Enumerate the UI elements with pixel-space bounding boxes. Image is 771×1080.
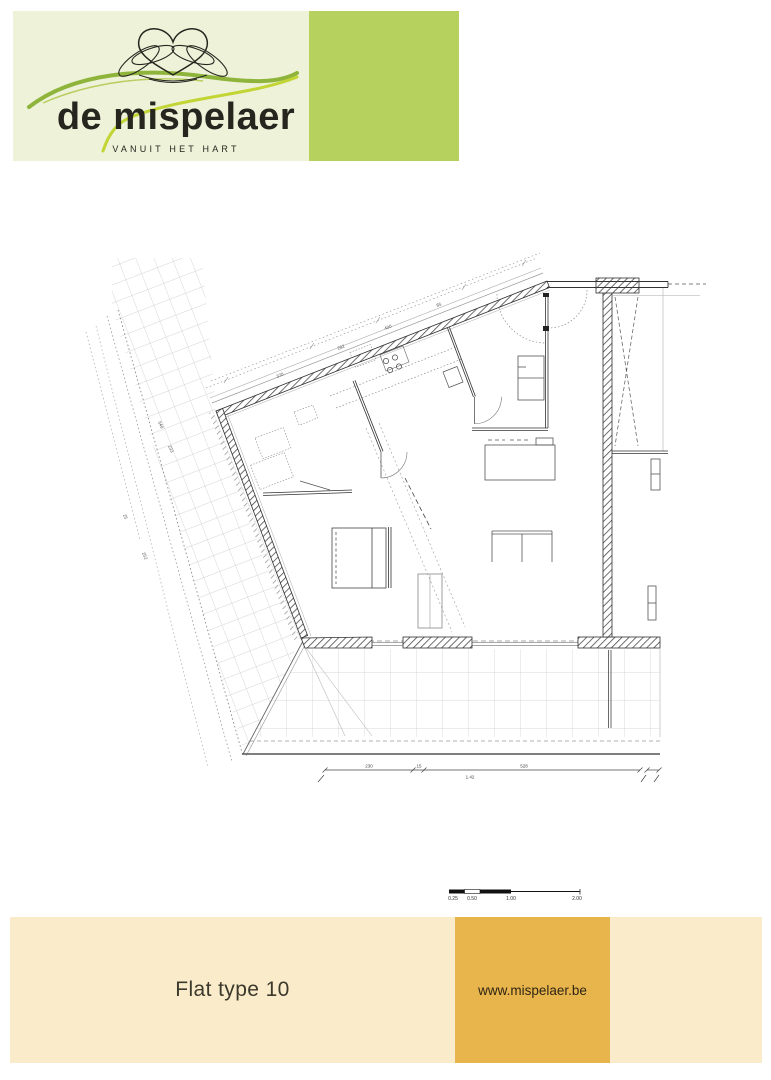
page-title: Flat type 10 [10, 917, 455, 1063]
dim-label: 15 [416, 764, 422, 769]
bottom-dimension-labels: 230 15 528 1.42 [365, 764, 528, 780]
website-square: www.mispelaer.be [455, 917, 610, 1063]
terrace [242, 641, 665, 756]
dim-label: 25 [122, 513, 129, 520]
website-label[interactable]: www.mispelaer.be [478, 983, 587, 998]
scale-label: 0.50 [467, 896, 477, 902]
dim-label: 370 [276, 371, 285, 379]
scale-label: 1.00 [506, 896, 516, 902]
dim-label: 252 [141, 551, 149, 560]
dim-label: 1.42 [466, 775, 475, 780]
facade-dimension-labels: 370 282 400 85 [276, 301, 443, 379]
facade-dimension-lines [206, 253, 540, 388]
dim-label: 528 [520, 764, 528, 769]
scale-bar: 0.25 0.50 1.00 2.00 [448, 889, 582, 902]
scale-label: 0.25 [448, 896, 458, 902]
furniture [251, 345, 660, 628]
bottom-dimension [318, 768, 662, 783]
top-wall [547, 282, 706, 454]
dim-label: 230 [365, 764, 373, 769]
scale-label: 2.00 [572, 896, 582, 902]
dim-label: 400 [384, 323, 393, 331]
page-title-text: Flat type 10 [175, 978, 290, 1002]
dim-label: 282 [337, 343, 346, 351]
